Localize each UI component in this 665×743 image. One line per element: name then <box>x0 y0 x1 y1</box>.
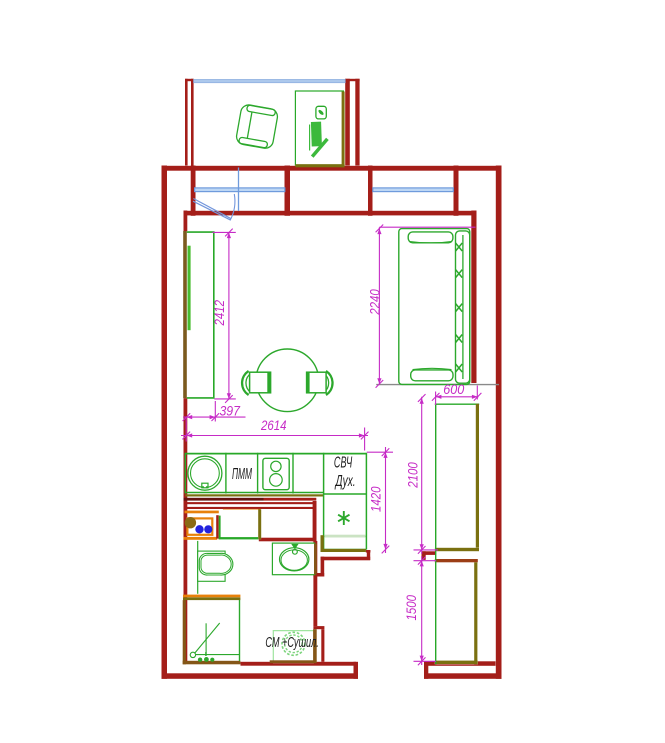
svg-text:Дух.: Дух. <box>334 473 355 490</box>
svg-text:СМ +Сушил.: СМ +Сушил. <box>265 634 319 651</box>
svg-text:ПММ: ПММ <box>232 466 252 483</box>
svg-text:600: 600 <box>443 382 464 397</box>
svg-text:397: 397 <box>219 403 240 418</box>
svg-text:2412: 2412 <box>212 300 227 327</box>
svg-text:2100: 2100 <box>406 462 421 489</box>
svg-text:2614: 2614 <box>260 418 286 433</box>
svg-text:1500: 1500 <box>404 595 419 621</box>
svg-text:СВЧ: СВЧ <box>334 454 353 471</box>
svg-text:2240: 2240 <box>368 289 383 316</box>
svg-text:1420: 1420 <box>368 486 383 512</box>
